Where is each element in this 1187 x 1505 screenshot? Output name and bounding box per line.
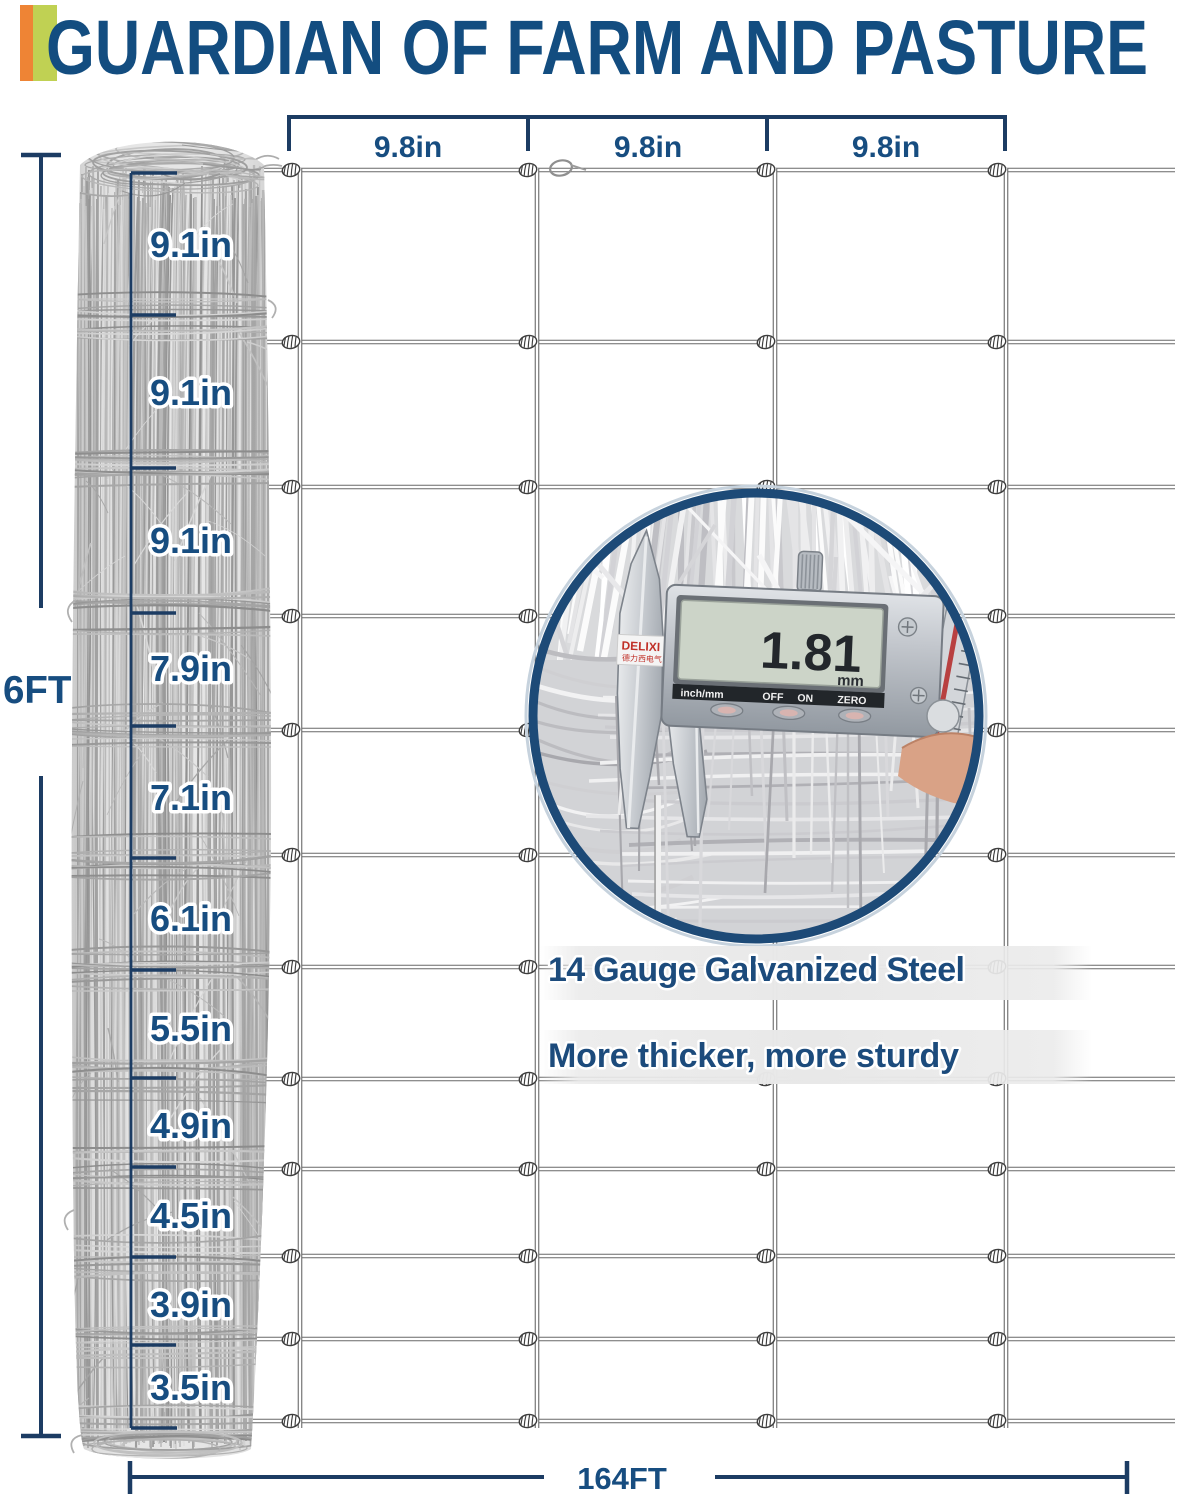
- svg-text:mm: mm: [837, 672, 864, 690]
- svg-text:9.8in: 9.8in: [374, 131, 442, 164]
- svg-text:德力西电气: 德力西电气: [622, 653, 662, 665]
- svg-text:9.1in: 9.1in: [150, 520, 232, 561]
- svg-text:6.1in: 6.1in: [150, 898, 232, 939]
- svg-text:14 Gauge Galvanized Steel: 14 Gauge Galvanized Steel: [548, 951, 965, 989]
- svg-text:4.5in: 4.5in: [150, 1195, 232, 1236]
- svg-text:OFF: OFF: [762, 691, 784, 704]
- svg-text:9.8in: 9.8in: [614, 131, 682, 164]
- svg-text:3.9in: 3.9in: [150, 1284, 232, 1325]
- svg-text:7.1in: 7.1in: [150, 777, 232, 818]
- svg-text:3.5in: 3.5in: [150, 1367, 232, 1408]
- svg-text:9.1in: 9.1in: [150, 372, 232, 413]
- svg-text:4.9in: 4.9in: [150, 1105, 232, 1146]
- svg-text:164FT: 164FT: [577, 1461, 667, 1496]
- svg-text:ON: ON: [797, 692, 813, 705]
- svg-text:7.9in: 7.9in: [150, 648, 232, 689]
- svg-text:5.5in: 5.5in: [150, 1008, 232, 1049]
- svg-text:GUARDIAN OF FARM AND PASTURE: GUARDIAN OF FARM AND PASTURE: [46, 5, 1148, 91]
- svg-text:inch/mm: inch/mm: [680, 687, 724, 701]
- svg-text:ZERO: ZERO: [837, 694, 867, 707]
- svg-text:More thicker, more sturdy: More thicker, more sturdy: [548, 1037, 959, 1075]
- svg-text:9.1in: 9.1in: [150, 224, 232, 265]
- svg-text:6FT: 6FT: [3, 669, 72, 712]
- svg-text:9.8in: 9.8in: [852, 131, 920, 164]
- svg-text:DELIXI: DELIXI: [621, 639, 660, 655]
